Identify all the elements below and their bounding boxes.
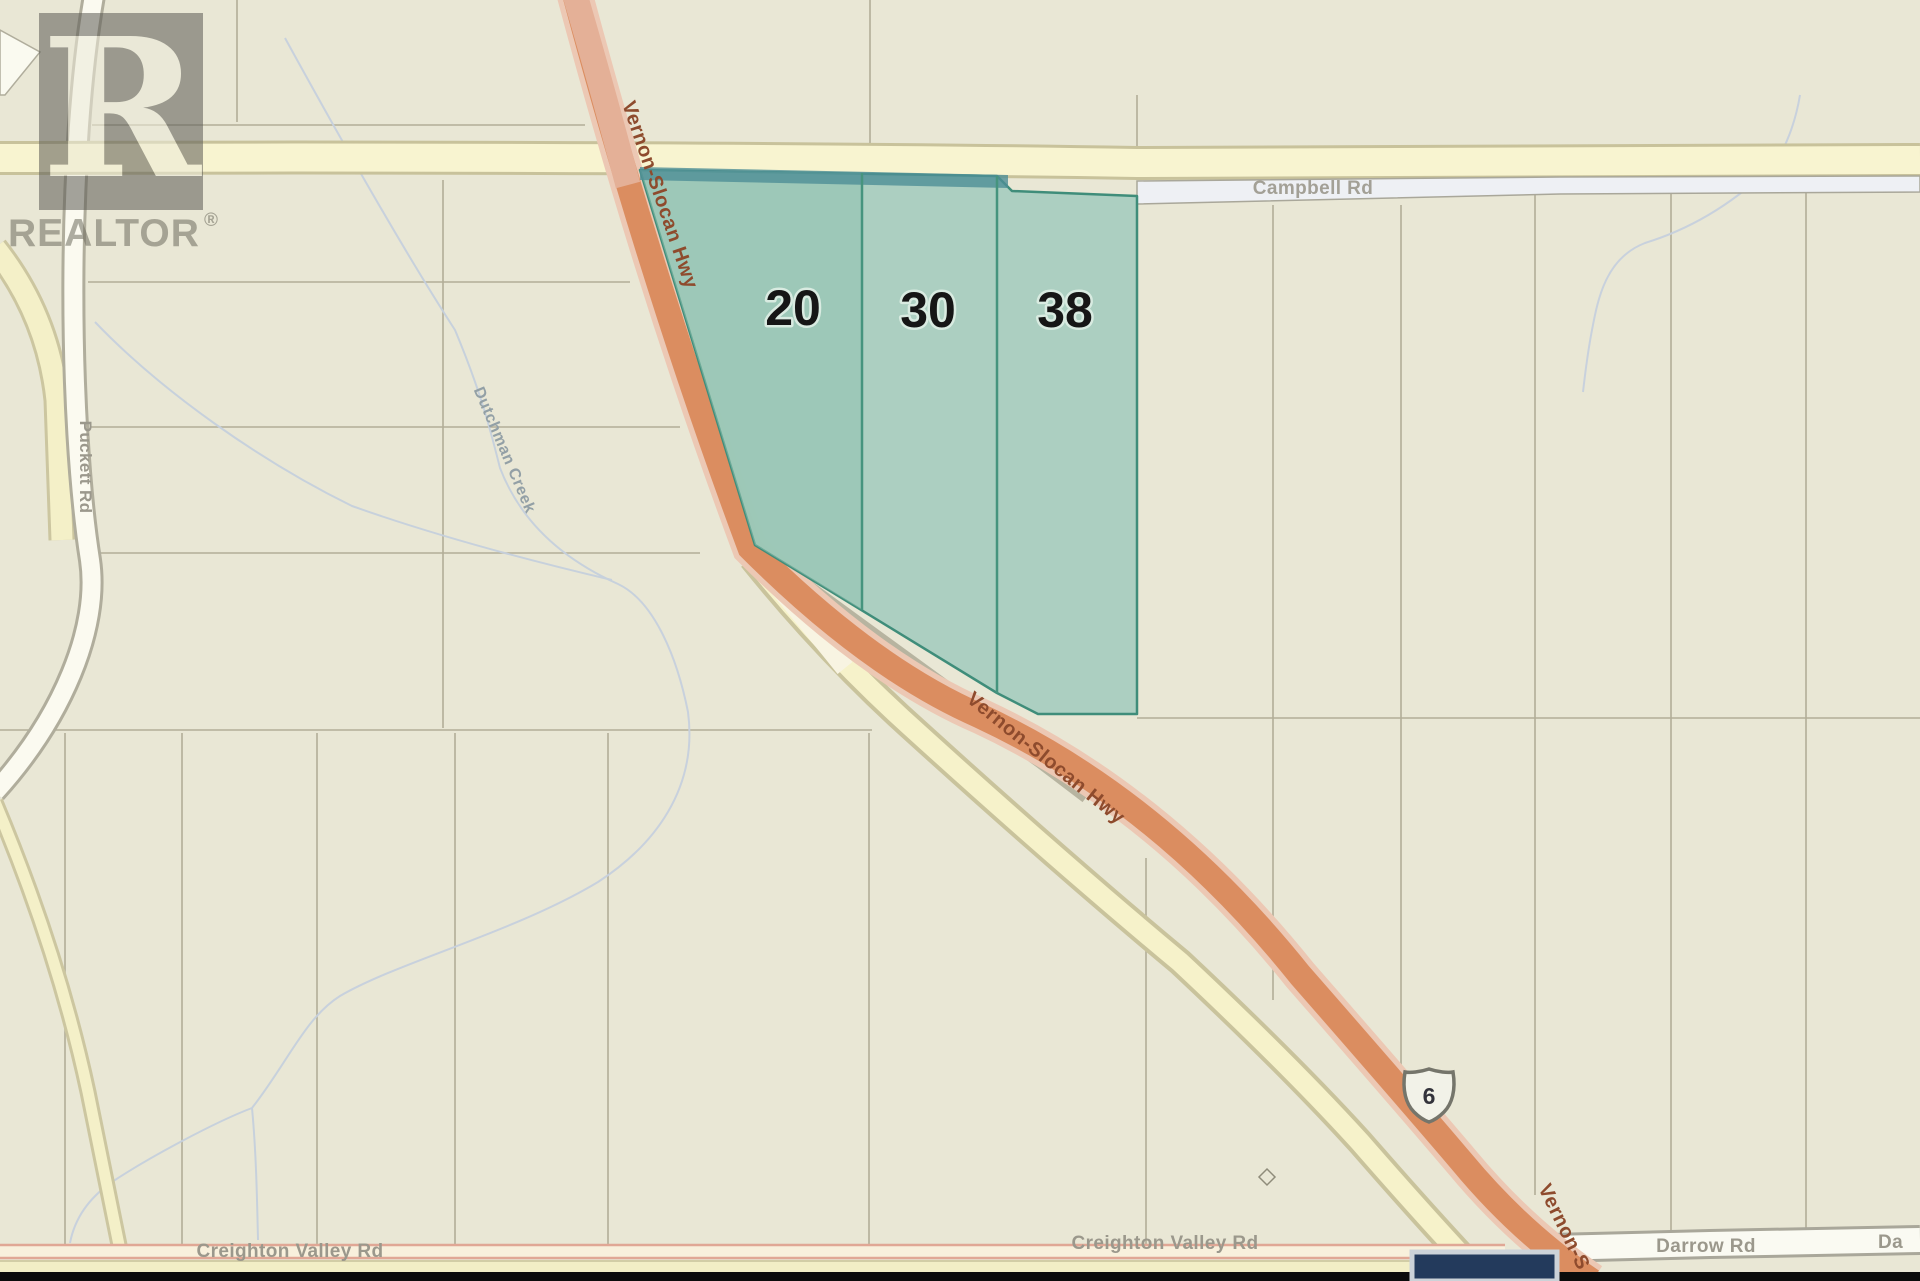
darrow-rd-label-truncated: Da bbox=[1878, 1232, 1903, 1253]
campbell-rd-label: Campbell Rd bbox=[1253, 178, 1374, 199]
parcel-30-label: 30 bbox=[900, 282, 956, 338]
registered-trademark-icon: ® bbox=[204, 210, 218, 231]
map-canvas[interactable]: 20 30 38 Campbell Rd Vernon-Slocan Hwy V… bbox=[0, 0, 1920, 1281]
parcel-20-label: 20 bbox=[765, 280, 821, 336]
puckett-rd-label: Puckett Rd bbox=[76, 421, 95, 514]
parcel-38-label: 38 bbox=[1037, 282, 1093, 338]
creighton-valley-rd-label-west: Creighton Valley Rd bbox=[196, 1241, 383, 1262]
darrow-rd-label: Darrow Rd bbox=[1656, 1236, 1756, 1257]
realtor-watermark: R REALTOR ® bbox=[8, 0, 218, 255]
realtor-logo-letter: R bbox=[41, 0, 202, 222]
realtor-brand-text: REALTOR bbox=[8, 212, 200, 255]
bottom-black-bar bbox=[0, 1272, 1920, 1281]
creighton-valley-rd-label-east: Creighton Valley Rd bbox=[1071, 1233, 1258, 1254]
parcel-map: 20 30 38 Campbell Rd Vernon-Slocan Hwy V… bbox=[0, 0, 1920, 1281]
navy-marker-box bbox=[1412, 1252, 1557, 1281]
highway-6-shield-number: 6 bbox=[1423, 1083, 1436, 1109]
